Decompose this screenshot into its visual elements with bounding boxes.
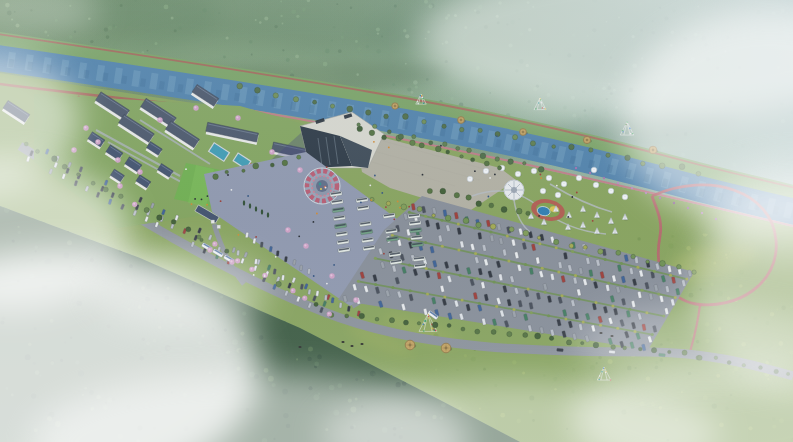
cloud-wisp (90, 250, 270, 330)
aerial-render: Aerial rendering of riverside tourist re… (0, 0, 793, 442)
scene-svg: Bird's-eye architectural rendering: mist… (0, 0, 793, 442)
